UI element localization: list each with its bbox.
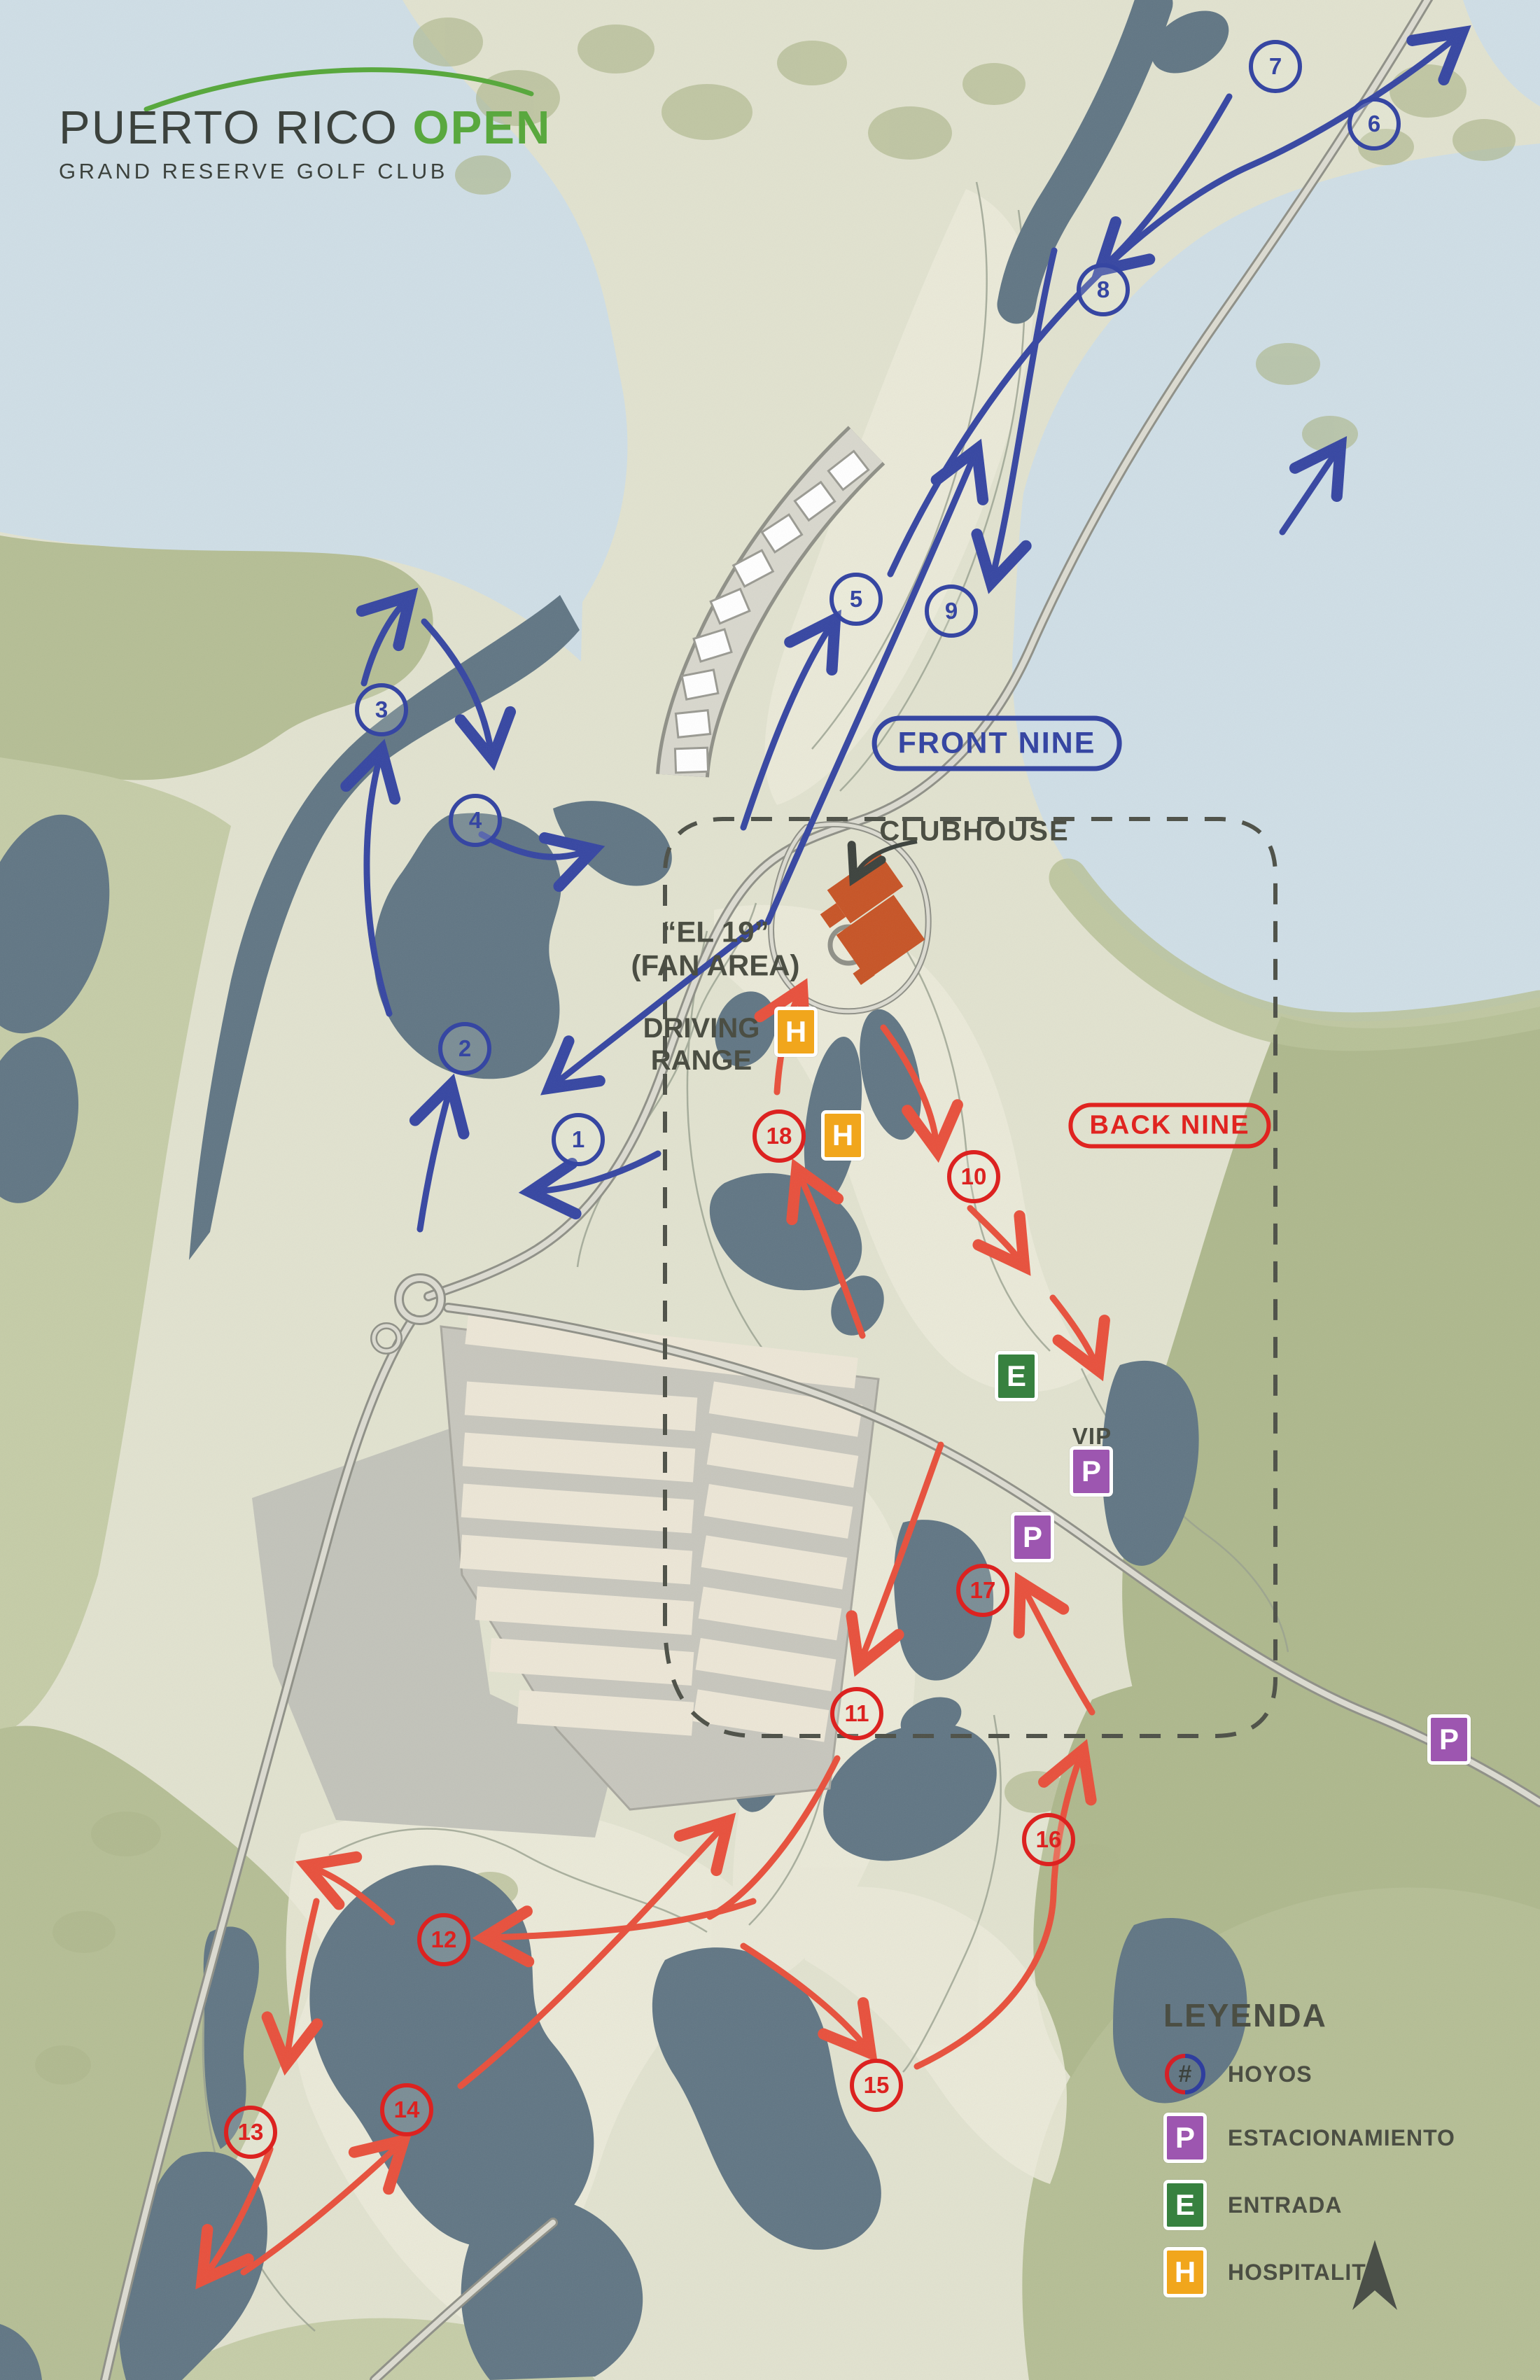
legend-holes-label: HOYOS [1228, 2061, 1312, 2087]
hole-circle-icon: # [1163, 2052, 1207, 2096]
legend-row-holes: # HOYOS [1163, 2052, 1457, 2096]
legend-title: LEYENDA [1163, 1996, 1457, 2034]
hole-number: 9 [945, 598, 958, 624]
hole-marker-11: 11 [830, 1687, 883, 1740]
driving-line2: RANGE [643, 1044, 760, 1077]
hole-marker-10: 10 [947, 1150, 1000, 1203]
legend: LEYENDA # HOYOS P ESTACIONAMIENTO E ENTR… [1163, 1996, 1457, 2314]
hole-marker-6: 6 [1347, 97, 1401, 150]
hole-number: 5 [850, 586, 862, 612]
front-nine-badge: FRONT NINE [872, 716, 1122, 771]
hospitality-marker: H [821, 1110, 864, 1161]
hole-number: 3 [375, 696, 388, 723]
el19-line2: (FAN AREA) [631, 949, 799, 983]
legend-row-parking: P ESTACIONAMIENTO [1163, 2113, 1457, 2163]
entrance-icon: E [1163, 2180, 1207, 2230]
hole-marker-16: 16 [1022, 1813, 1075, 1866]
parking-marker: P [1427, 1714, 1471, 1765]
hole-number: 16 [1036, 1826, 1062, 1853]
hole-number: 13 [238, 2119, 264, 2145]
hole-number: 7 [1269, 53, 1282, 80]
legend-parking-label: ESTACIONAMIENTO [1228, 2125, 1455, 2151]
hole-marker-18: 18 [752, 1109, 806, 1163]
legend-hospitality-symbol: H [1175, 2255, 1196, 2289]
hole-marker-9: 9 [925, 584, 978, 638]
hole-number: 1 [572, 1126, 584, 1153]
el19-fan-area-label: “EL 19” (FAN AREA) [631, 916, 799, 983]
logo-subtitle: GRAND RESERVE GOLF CLUB [59, 159, 521, 184]
hole-marker-3: 3 [355, 683, 408, 736]
el19-line1: “EL 19” [631, 916, 799, 949]
hole-marker-2: 2 [438, 1022, 491, 1075]
hole-number: 18 [766, 1123, 792, 1149]
legend-entrance-symbol: E [1175, 2188, 1195, 2222]
parking-icon: P [1163, 2113, 1207, 2163]
hole-marker-1: 1 [552, 1113, 605, 1166]
hole-marker-12: 12 [417, 1913, 470, 1966]
hole-marker-5: 5 [829, 573, 883, 626]
hole-number: 6 [1368, 111, 1380, 137]
clubhouse-label: CLUBHOUSE [879, 816, 1069, 848]
hole-marker-14: 14 [380, 2083, 433, 2136]
legend-parking-symbol: P [1175, 2121, 1195, 2155]
driving-line1: DRIVING [643, 1012, 760, 1044]
hole-number: 12 [431, 1926, 457, 1953]
entrance-marker: E [995, 1351, 1038, 1401]
north-arrow-icon [1351, 2240, 1399, 2313]
facility-letter: P [1081, 1455, 1101, 1488]
logo-title-main: PUERTO RICO [59, 101, 413, 154]
logo-title: PUERTO RICO OPEN [59, 101, 521, 155]
hospitality-icon: H [1163, 2247, 1207, 2297]
hospitality-marker: H [774, 1007, 818, 1057]
hole-number: 11 [845, 1700, 869, 1727]
facility-letter: P [1439, 1723, 1459, 1756]
legend-row-entrance: E ENTRADA [1163, 2180, 1457, 2230]
hole-number: 10 [961, 1163, 987, 1190]
back-nine-badge: BACK NINE [1068, 1103, 1270, 1149]
hole-marker-7: 7 [1249, 40, 1302, 93]
parking-marker: P [1070, 1446, 1113, 1497]
facility-letter: E [1007, 1359, 1026, 1393]
legend-entrance-label: ENTRADA [1228, 2192, 1342, 2218]
hole-marker-4: 4 [449, 794, 502, 847]
hole-marker-13: 13 [224, 2106, 277, 2159]
logo-title-accent: OPEN [413, 101, 552, 154]
golf-course-map: PUERTO RICO OPEN GRAND RESERVE GOLF CLUB… [0, 0, 1540, 2380]
facility-letter: H [785, 1015, 806, 1049]
driving-range-label: DRIVING RANGE [643, 1012, 760, 1077]
event-logo: PUERTO RICO OPEN GRAND RESERVE GOLF CLUB [59, 64, 521, 184]
hole-number: 17 [970, 1577, 996, 1604]
hole-marker-15: 15 [850, 2059, 903, 2112]
hole-number: 4 [469, 807, 482, 834]
legend-row-hospitality: H HOSPITALITY [1163, 2247, 1457, 2297]
hole-number: 8 [1097, 276, 1109, 303]
facility-letter: P [1023, 1520, 1042, 1554]
hole-number: 14 [394, 2096, 420, 2123]
hole-marker-17: 17 [956, 1564, 1009, 1617]
hole-number: 2 [458, 1035, 471, 1062]
hole-number: 15 [864, 2072, 890, 2099]
facility-letter: H [832, 1119, 853, 1152]
legend-holes-symbol: # [1163, 2052, 1207, 2096]
parking-marker: P [1011, 1512, 1054, 1562]
hole-marker-8: 8 [1077, 263, 1130, 316]
